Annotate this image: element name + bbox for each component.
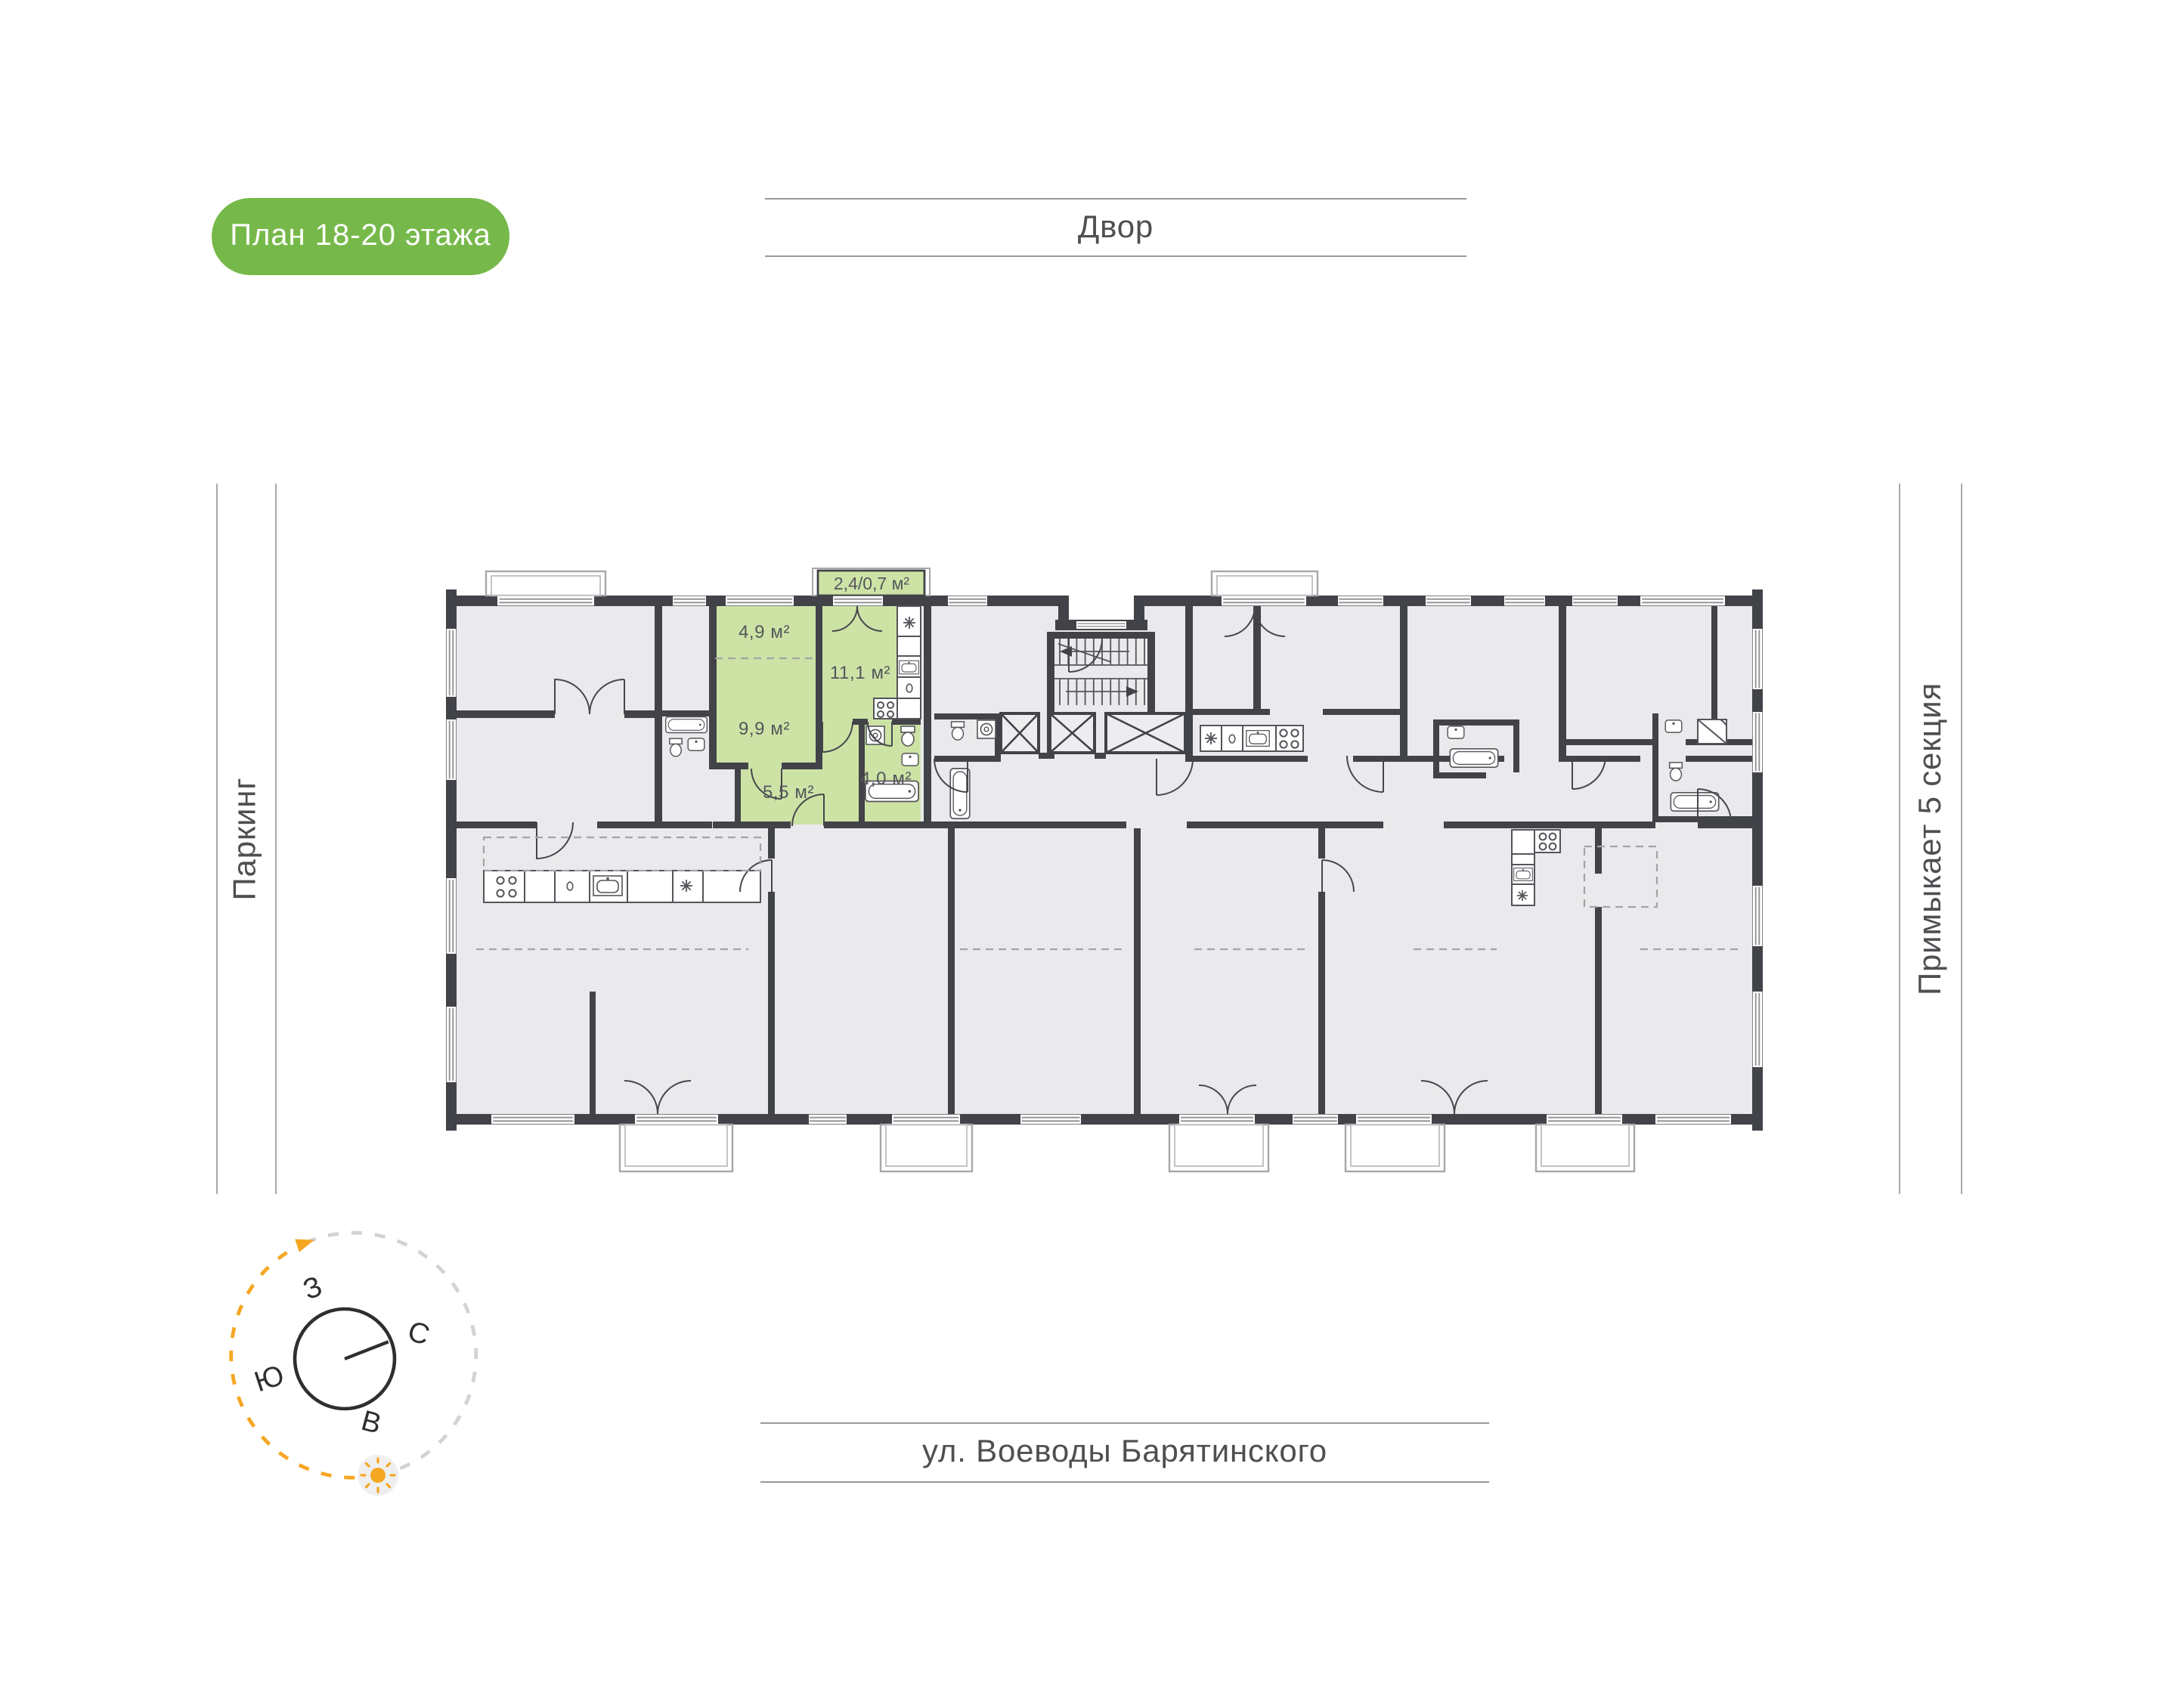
street-label: ул. Воеводы Барятинского xyxy=(760,1422,1489,1483)
adjoining-section-label: Примыкает 5 секция xyxy=(1899,484,1962,1194)
compass-east: В xyxy=(358,1405,384,1440)
compass: З С Ю В xyxy=(216,1230,473,1518)
compass-north: С xyxy=(404,1315,433,1351)
street-label-text: ул. Воеводы Барятинского xyxy=(922,1434,1327,1471)
floor-badge: План 18-20 этажа xyxy=(212,198,509,275)
bathtub-icon xyxy=(950,769,970,818)
sink-icon xyxy=(1665,720,1682,732)
elevator-shaft xyxy=(1106,713,1185,753)
room-area-label: 9,9 м² xyxy=(739,719,790,739)
courtyard-label: Двор xyxy=(765,198,1466,257)
floor-plan-page: План 18-20 этажа Двор Паркинг Примыкает … xyxy=(0,0,2177,1708)
toilet-icon xyxy=(670,738,682,757)
elevator-shaft xyxy=(1050,713,1095,753)
building-interior xyxy=(457,606,1752,1114)
room-area-label: 11,1 м² xyxy=(830,663,890,683)
kitchen-sink-icon xyxy=(900,661,919,674)
sink-icon xyxy=(688,738,705,750)
kitchen-sink-icon xyxy=(1246,731,1269,747)
washer-icon xyxy=(977,720,996,738)
kitchen-sink-icon xyxy=(593,876,622,896)
room-area-label: 2,4/0,7 м² xyxy=(834,574,910,593)
vent-icon xyxy=(680,880,692,892)
sink-icon xyxy=(902,753,918,766)
vent-icon xyxy=(1205,732,1217,744)
bathtub-icon xyxy=(666,717,708,733)
kitchen-sink-icon xyxy=(1514,868,1533,881)
toilet-icon xyxy=(901,726,915,746)
elevators xyxy=(1001,713,1185,753)
bathtub-icon xyxy=(1450,749,1497,767)
bathtub-icon xyxy=(1671,793,1718,811)
elevator-shaft xyxy=(1001,713,1039,753)
room-area-label: 4,0 м² xyxy=(860,769,912,789)
vent-icon xyxy=(1517,890,1528,901)
parking-label: Паркинг xyxy=(216,484,277,1194)
compass-dial xyxy=(295,1309,395,1409)
sink-icon xyxy=(1448,726,1464,738)
room-area-label: 5,5 м² xyxy=(763,782,814,803)
floor-plan: 2,4/0,7 м² 4,9 м² 11,1 м² 9,9 м² 5,5 м² … xyxy=(446,568,1763,1182)
room-area-label: 4,9 м² xyxy=(739,622,790,642)
compass-west: З xyxy=(299,1270,326,1306)
window xyxy=(1076,621,1126,629)
vent-icon xyxy=(903,617,915,629)
adjoining-section-label-text: Примыкает 5 секция xyxy=(1912,682,1949,995)
compass-south: Ю xyxy=(251,1360,288,1399)
toilet-icon xyxy=(1670,763,1683,781)
parking-label-text: Паркинг xyxy=(228,778,265,901)
courtyard-label-text: Двор xyxy=(1078,209,1154,246)
highlighted-unit[interactable]: 2,4/0,7 м² 4,9 м² 11,1 м² 9,9 м² 5,5 м² … xyxy=(709,568,930,828)
sun-icon xyxy=(358,1455,398,1496)
toilet-icon xyxy=(952,722,965,740)
rotation-arrow-icon xyxy=(295,1239,314,1252)
entry-notch xyxy=(1069,583,1134,620)
